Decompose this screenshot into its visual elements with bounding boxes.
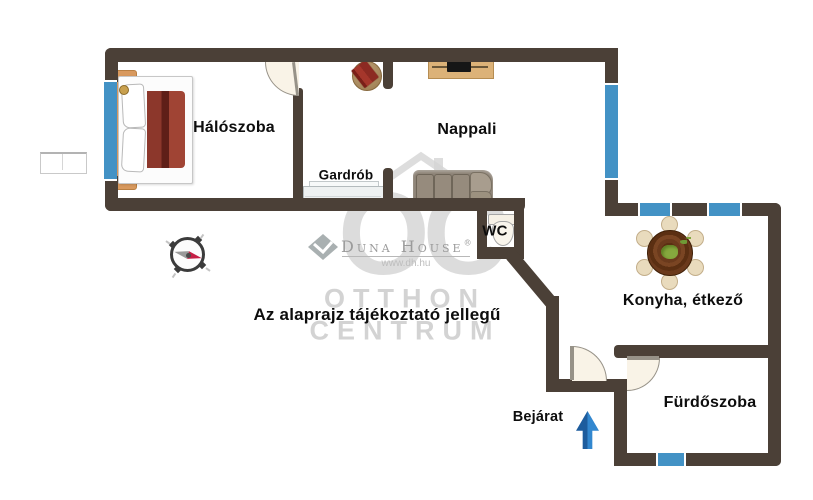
brand-text: Duna House	[341, 237, 464, 256]
room-label-bejarat: Bejárat	[513, 409, 564, 425]
floor-plan-canvas: OC Duna House® www.dh.hu OTTHON CENTRUM	[0, 0, 813, 500]
room-label-wc: WC	[482, 223, 507, 240]
wall-kitchen-top	[605, 203, 781, 216]
room-label-konyha: Konyha, étkező	[623, 292, 743, 310]
wall-top	[105, 48, 618, 62]
dunahouse-url-watermark: www.dh.hu	[342, 258, 470, 269]
wall-bathroom-bottom	[614, 453, 781, 466]
entrance-arrow-icon	[576, 411, 599, 449]
tv-icon	[447, 61, 471, 72]
window-kitchen-1	[638, 203, 672, 216]
wall-hall-left	[546, 296, 559, 392]
wall-left-upper	[105, 48, 118, 82]
bed-blanket	[147, 91, 185, 168]
bed-pillow	[121, 127, 146, 172]
room-label-haloszoba: Hálószoba	[193, 119, 275, 137]
wall-gardrob-stub-bottom	[383, 168, 393, 200]
window-bedroom	[104, 80, 117, 181]
window-bathroom	[656, 453, 686, 466]
window-living	[605, 83, 618, 180]
compass-pivot	[186, 253, 191, 258]
brand-underline	[342, 256, 470, 257]
dunahouse-brand-watermark: Duna House®	[341, 237, 472, 256]
exterior-ledge	[40, 152, 87, 174]
door-entrance-leaf	[570, 346, 574, 380]
room-label-furdoszoba: Fürdőszoba	[664, 394, 757, 412]
bedside-lamp-icon	[119, 85, 129, 95]
disclaimer-note: Az alaprajz tájékoztató jellegű	[253, 305, 500, 325]
wall-partition-bedroom	[293, 88, 303, 200]
dunahouse-diamond-icon	[304, 233, 340, 263]
wall-bottom-left-section	[105, 198, 525, 211]
window-kitchen-2	[707, 203, 742, 216]
compass-rose-icon	[164, 231, 212, 279]
wardrobe-shelf-line	[305, 196, 381, 197]
wall-right-living-upper	[605, 48, 618, 85]
room-label-nappali: Nappali	[437, 121, 496, 139]
registered-mark: ®	[464, 239, 472, 248]
wall-gardrob-stub-top	[383, 62, 393, 89]
wall-right-main	[768, 203, 781, 466]
exterior-ledge-divider	[62, 154, 63, 170]
room-label-gardrob: Gardrób	[319, 168, 374, 183]
door-bathroom-leaf	[627, 356, 659, 360]
door-entrance	[572, 346, 607, 381]
table-plant-icon	[661, 245, 678, 259]
door-bathroom	[627, 358, 660, 391]
